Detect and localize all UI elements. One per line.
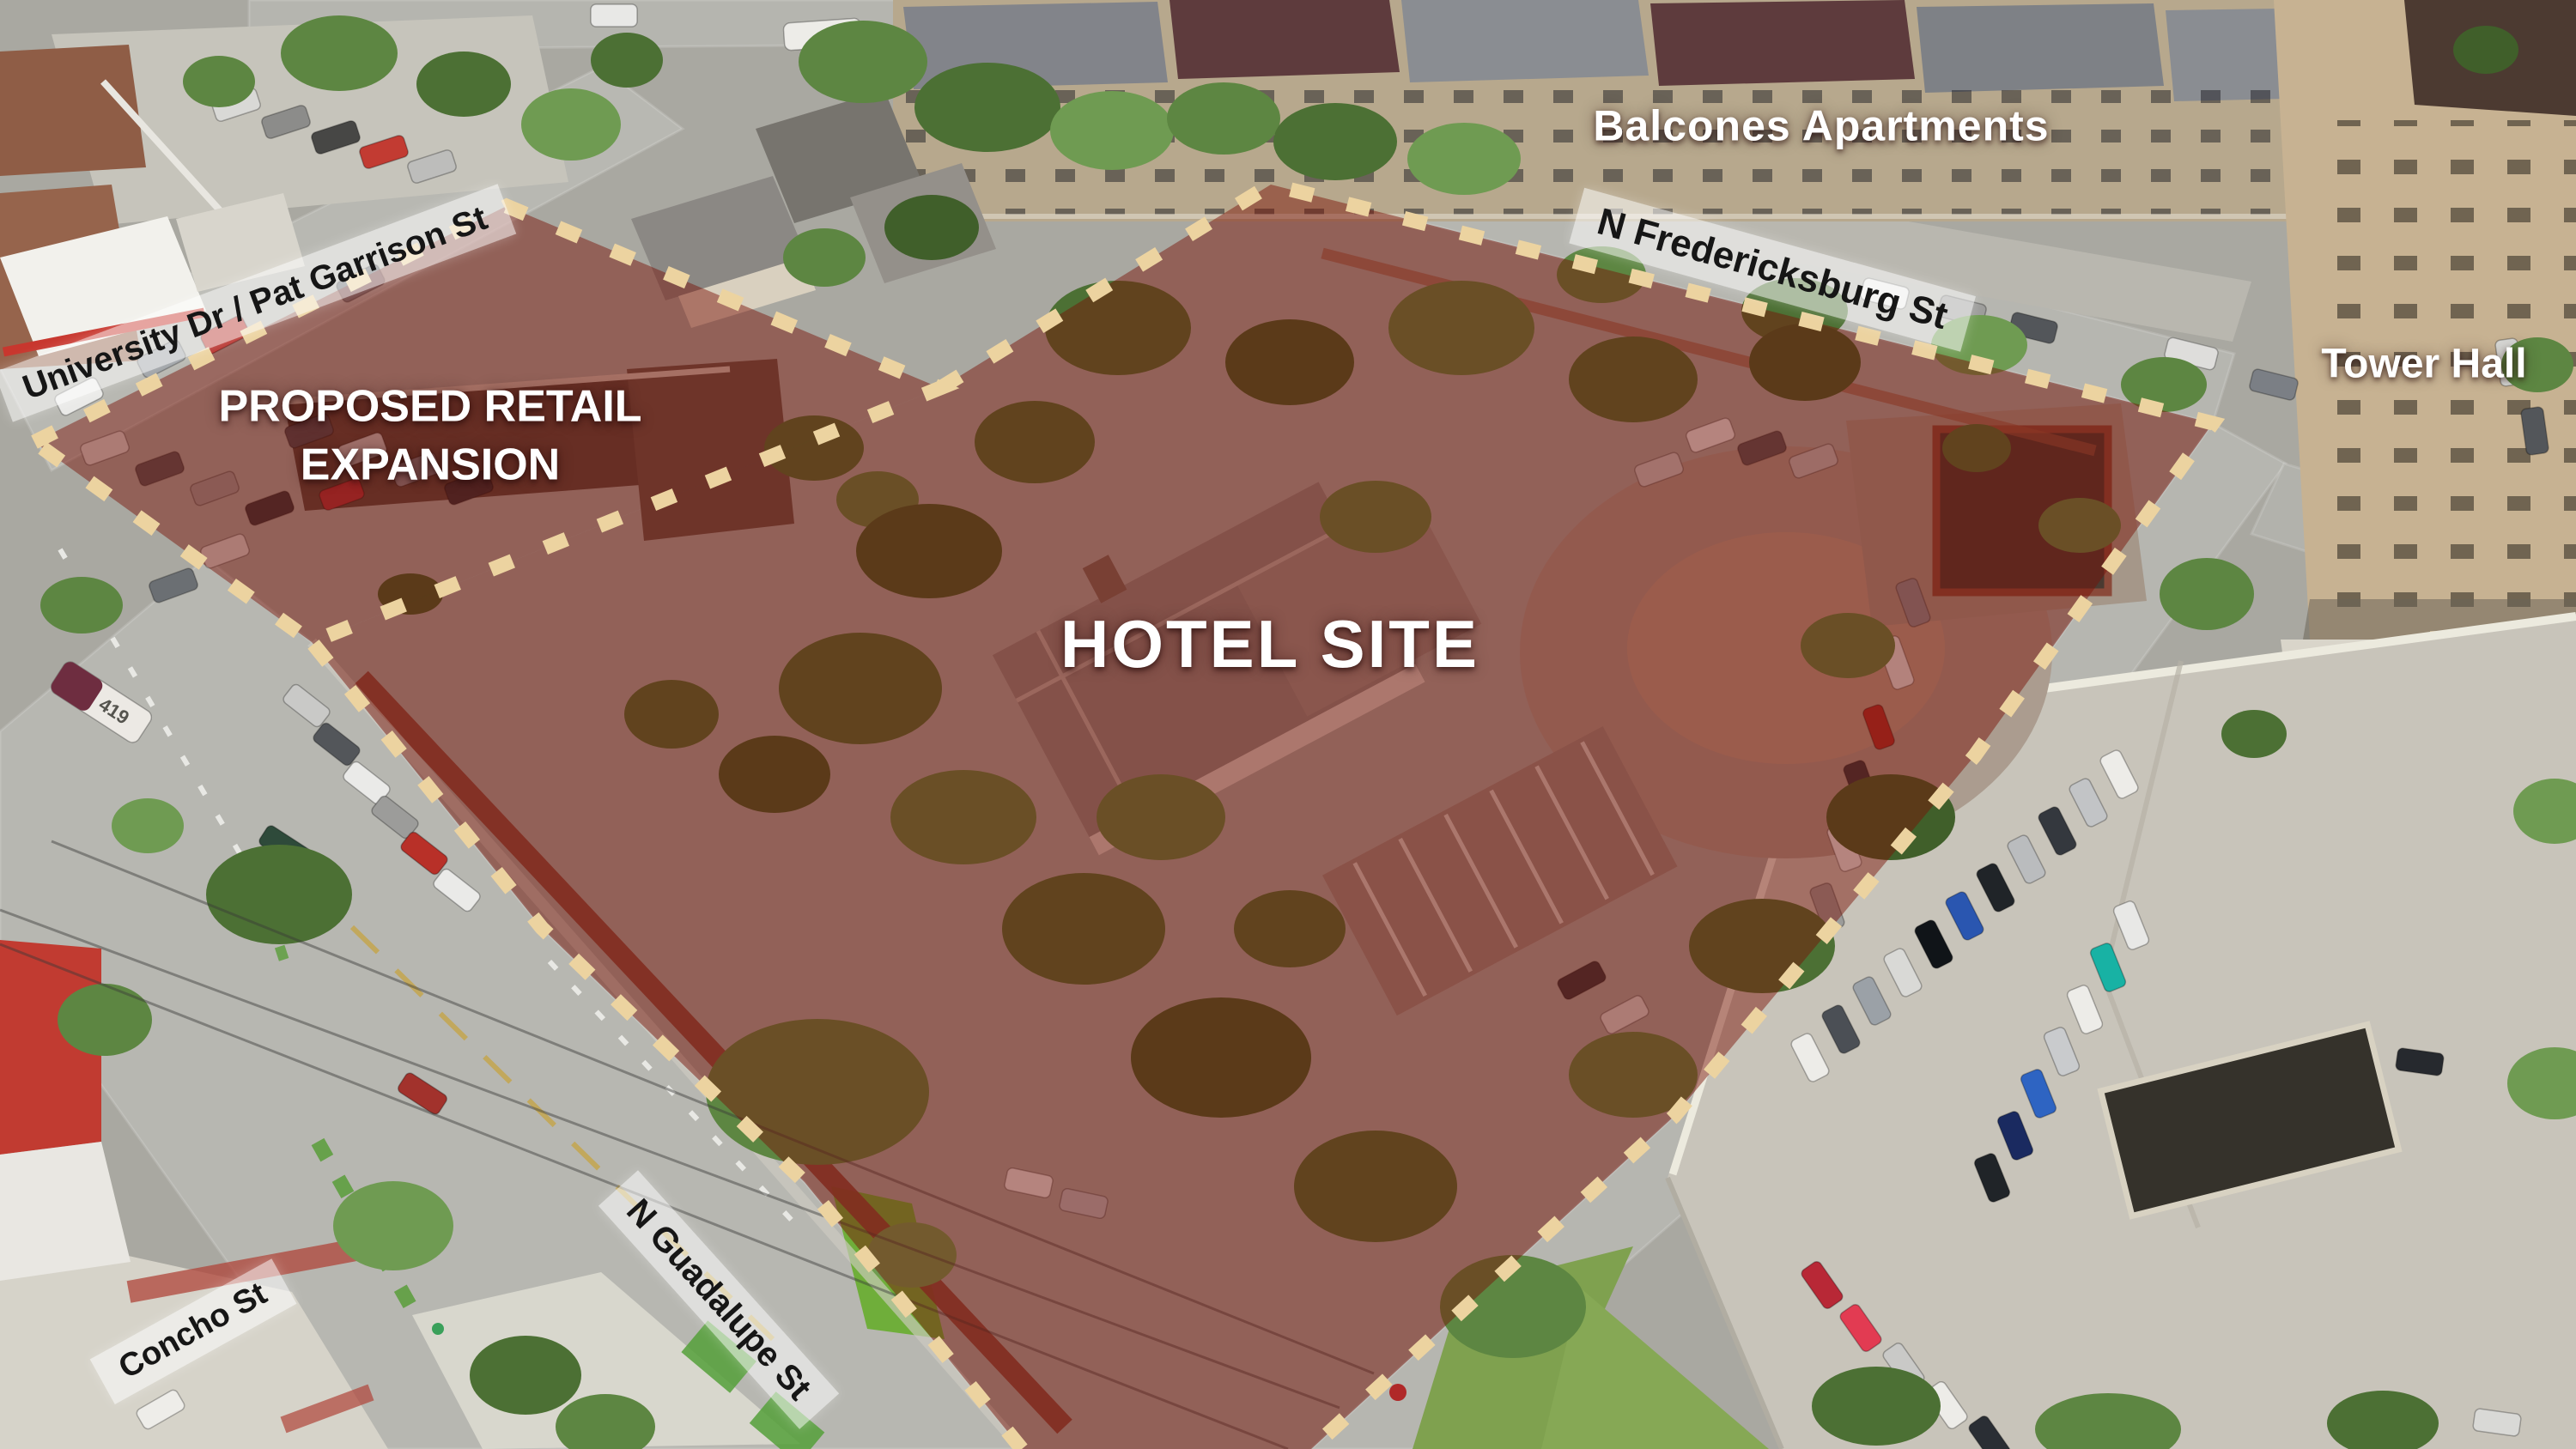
aerial-site-map: 419 [0, 0, 2576, 1449]
balcones-apartments-label: Balcones Apartments [1593, 101, 2049, 151]
retail-label-line1: PROPOSED RETAIL [218, 378, 641, 436]
proposed-retail-expansion-label: PROPOSED RETAIL EXPANSION [218, 378, 641, 494]
tower-hall-label: Tower Hall [2321, 340, 2526, 387]
stop-sign [1389, 1384, 1406, 1401]
aerial-photo: 419 [0, 0, 2576, 1449]
hotel-site-label: HOTEL SITE [1060, 606, 1479, 683]
brick-building [0, 45, 146, 176]
retail-label-line2: EXPANSION [218, 436, 641, 494]
